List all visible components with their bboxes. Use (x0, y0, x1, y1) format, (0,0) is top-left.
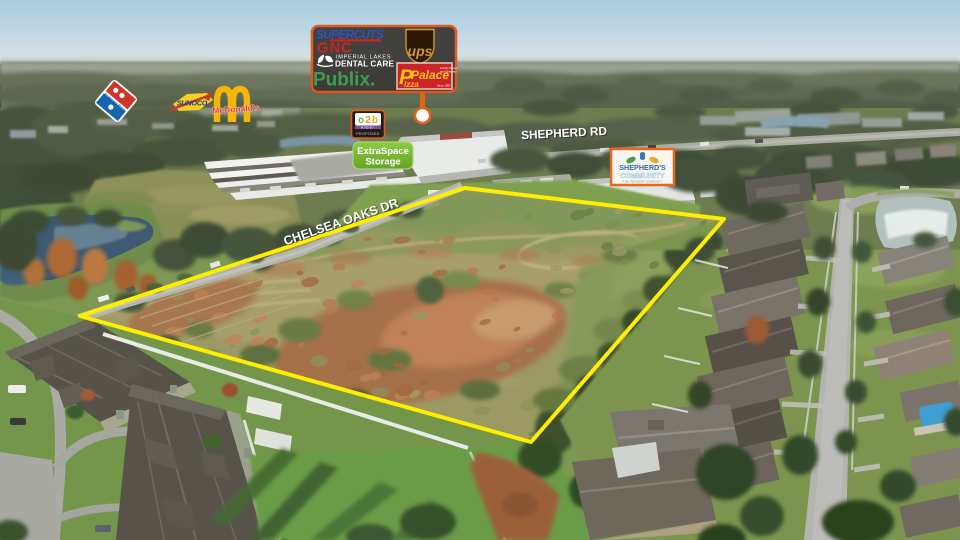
svg-text:PROPOSED: PROPOSED (356, 132, 380, 136)
svg-text:Family Owned: Family Owned (440, 66, 458, 70)
svg-text:and Operated: and Operated (440, 70, 457, 74)
svg-text:Publix.: Publix. (313, 70, 375, 91)
svg-text:Storage: Storage (365, 157, 400, 168)
svg-text:Since 1987: Since 1987 (437, 84, 451, 88)
svg-text:KIDS!: KIDS! (361, 125, 374, 129)
svg-text:A 55+ RESIDENT COMMUNITY: A 55+ RESIDENT COMMUNITY (622, 180, 662, 184)
svg-text:izza: izza (404, 80, 419, 89)
svg-text:ExtraSpace: ExtraSpace (357, 146, 409, 157)
svg-text:SUNOCO: SUNOCO (177, 99, 208, 108)
svg-text:DENTAL CARE: DENTAL CARE (335, 60, 394, 69)
svg-text:ups: ups (408, 43, 433, 59)
